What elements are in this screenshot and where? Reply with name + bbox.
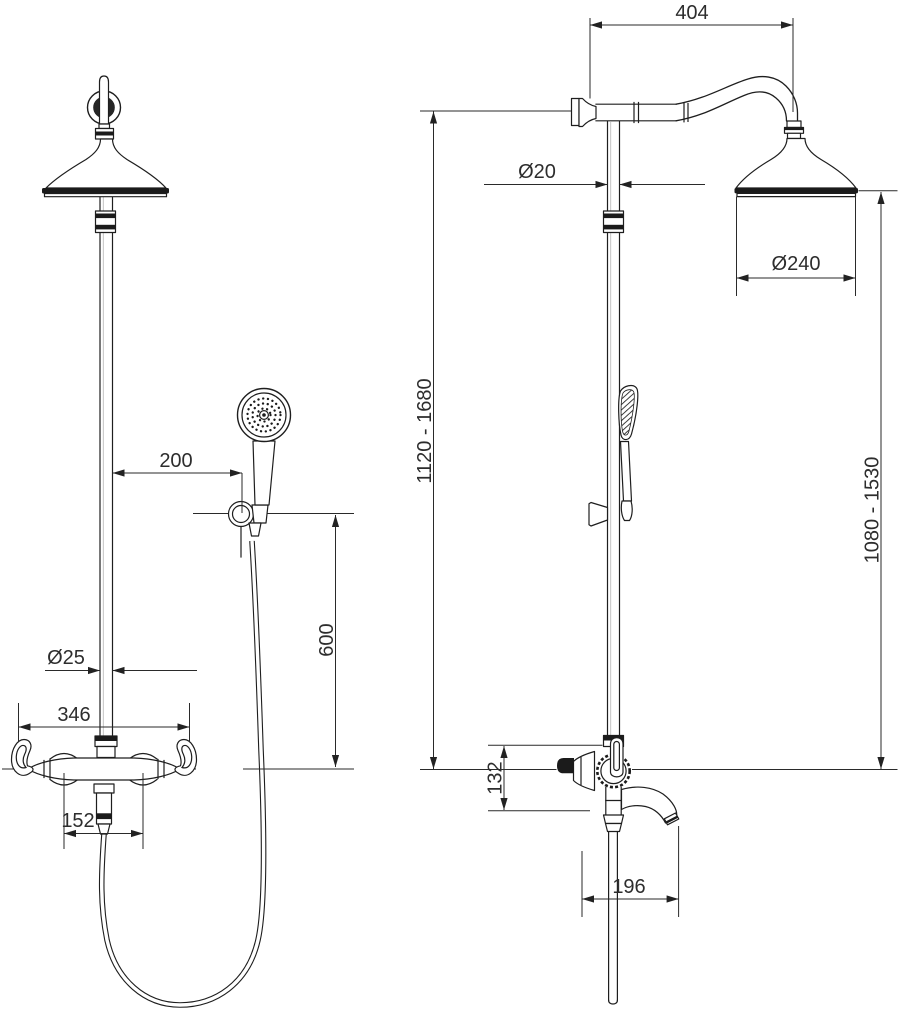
pipe-union-front <box>96 211 116 233</box>
dimension-body-width: 346 <box>19 703 190 741</box>
dim-200-label: 200 <box>159 450 192 472</box>
mixer-handle-left <box>12 740 34 776</box>
side-view: 404 Ø20 Ø240 1120 - 1680 1080 - 1530 <box>414 2 898 1004</box>
mixer-handle-right <box>175 740 197 776</box>
dim-600-label: 600 <box>316 623 338 656</box>
holder-bracket-side <box>589 503 608 527</box>
dimension-overall-height: 1120 - 1680 <box>414 111 571 770</box>
dim-d240-label: Ø240 <box>772 253 821 275</box>
mixer-outlet-front <box>94 784 114 834</box>
handle-end-cone <box>621 501 632 521</box>
dimension-spout-projection: 196 <box>582 826 679 917</box>
hose-connector <box>249 523 261 536</box>
wall-supply-elbow <box>572 99 689 127</box>
holder-bracket <box>252 505 268 523</box>
dimension-riser-diameter-front: Ø25 <box>45 647 197 671</box>
dim-1080-1530-label: 1080 - 1530 <box>862 457 884 564</box>
overhead-shower-side <box>735 139 859 197</box>
dim-1120-1680-label: 1120 - 1680 <box>414 378 436 483</box>
dim-132-label: 132 <box>485 761 507 794</box>
neck <box>99 124 110 129</box>
wall-escutcheon <box>574 752 595 791</box>
tub-spout-side <box>622 787 679 825</box>
dim-346-label: 346 <box>57 704 90 726</box>
hand-shower-handle <box>253 441 275 505</box>
pipe-union-side <box>604 211 624 233</box>
front-view: 200 600 Ø25 346 152 <box>2 76 354 1005</box>
dim-d25-label: Ø25 <box>47 647 85 669</box>
swivel-pin <box>100 76 109 124</box>
dim-d20-label: Ø20 <box>518 161 556 183</box>
shower-hose-side <box>609 832 618 1004</box>
top-swivel-bracket <box>88 76 121 139</box>
shower-arm-side <box>676 77 804 139</box>
riser-pipe-front <box>100 195 113 737</box>
dimension-arm-projection: 404 <box>590 2 793 112</box>
dim-196-label: 196 <box>612 876 645 898</box>
dim-404-label: 404 <box>675 2 708 24</box>
dim-152-label: 152 <box>61 810 94 832</box>
diverter-knob <box>558 759 574 773</box>
dimension-hand-shower-offset: 200 <box>113 450 243 513</box>
hand-shower-side <box>589 386 638 526</box>
mixer-valve-side <box>558 736 630 832</box>
hand-shower-handle-side <box>621 442 632 502</box>
dimension-head-diameter: Ø240 <box>737 197 856 296</box>
hand-shower-head <box>238 389 291 442</box>
mixer-body-front <box>12 736 197 834</box>
overhead-shower-front <box>42 139 169 197</box>
shower-system-drawing: 200 600 Ø25 346 152 <box>0 0 908 1020</box>
dimension-riser-diameter-side: Ø20 <box>484 161 705 185</box>
drawing-canvas: 200 600 Ø25 346 152 <box>0 0 908 1020</box>
